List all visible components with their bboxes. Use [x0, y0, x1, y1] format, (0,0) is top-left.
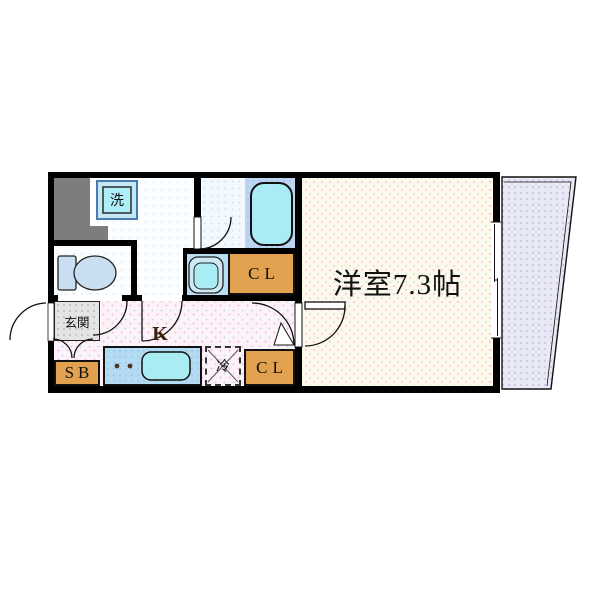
- washing-machine-label: 洗: [97, 181, 137, 219]
- refrigerator-label: 冷: [205, 346, 241, 386]
- entrance-label: 玄関: [54, 301, 100, 341]
- bathtub-panel: [245, 178, 295, 248]
- closet-lower-label: CL: [244, 349, 295, 386]
- floorplan-canvas: 洋室7.3帖 バルコニー K 玄関 洗 冷 CL CL SB: [0, 0, 600, 600]
- kitchen-label: K: [138, 321, 182, 347]
- shoe-box-label: SB: [54, 360, 100, 386]
- balcony-floor: [500, 172, 580, 394]
- closet-upper-label: CL: [228, 252, 295, 295]
- western-room-label: 洋室7.3帖: [302, 178, 493, 386]
- washbasin-area: [187, 254, 228, 295]
- kitchen-counter: [103, 346, 202, 386]
